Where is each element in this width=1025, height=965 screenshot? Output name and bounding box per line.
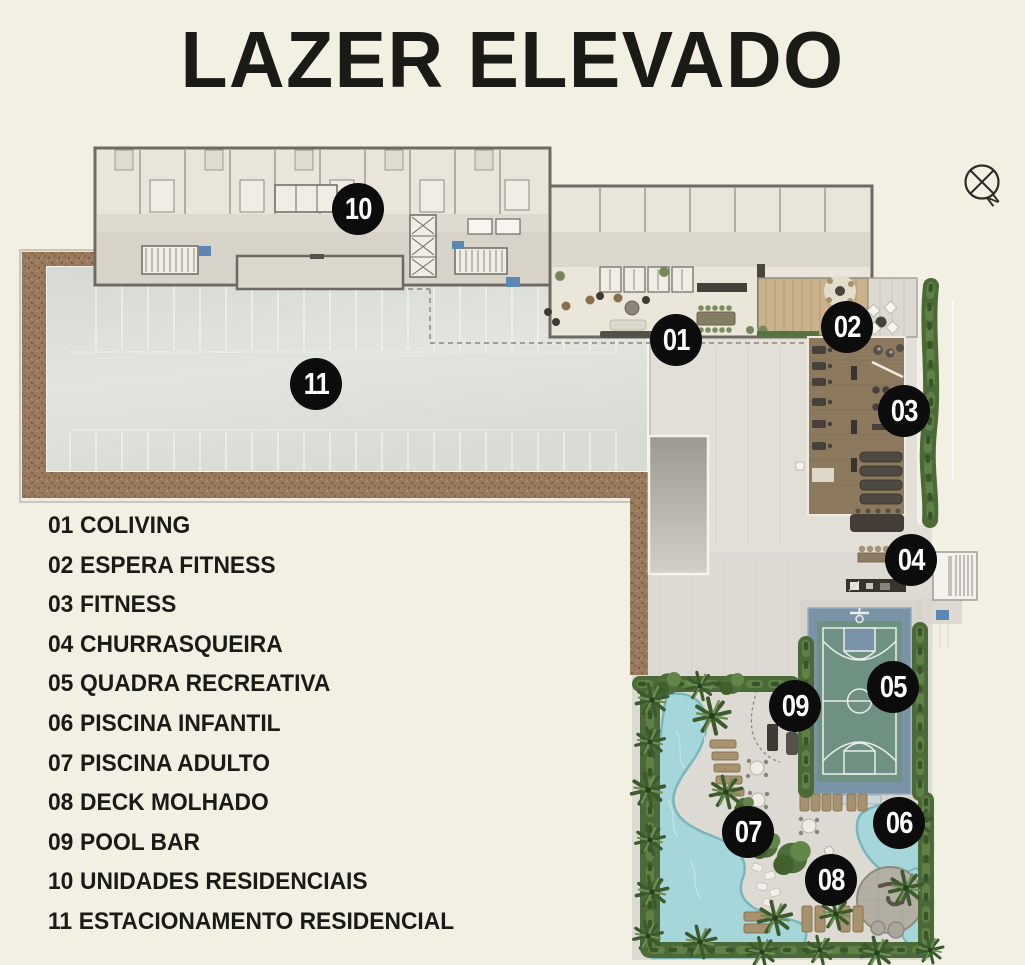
marker-07-piscina-adulto: 07	[722, 806, 774, 858]
legend-item-05: 05QUADRA RECREATIVA	[48, 664, 454, 704]
marker-06-piscina-infantil: 06	[873, 797, 925, 849]
legend-item-08: 08DECK MOLHADO	[48, 783, 454, 823]
legend-item-03: 03FITNESS	[48, 585, 454, 625]
marker-08-deck-molhado: 08	[805, 854, 857, 906]
legend-item-04: 04CHURRASQUEIRA	[48, 625, 454, 665]
marker-09-pool-bar: 09	[769, 680, 821, 732]
marker-03-fitness: 03	[878, 385, 930, 437]
vestibule	[867, 278, 917, 337]
marker-02-espera-fitness: 02	[821, 301, 873, 353]
marker-01-coliving: 01	[650, 314, 702, 366]
compass-icon	[952, 156, 1012, 216]
marker-04-churrasqueira: 04	[885, 534, 937, 586]
legend-item-10: 10UNIDADES RESIDENCIAIS	[48, 862, 454, 902]
legend-item-07: 07PISCINA ADULTO	[48, 744, 454, 784]
legend-item-09: 09POOL BAR	[48, 823, 454, 863]
marker-05-quadra: 05	[867, 661, 919, 713]
ramp	[649, 436, 708, 574]
accessibility-icon	[936, 610, 949, 620]
page: { "header": { "title": "LAZER ELEVADO" }…	[0, 0, 1025, 965]
legend-item-02: 02ESPERA FITNESS	[48, 546, 454, 586]
legend-item-11: 11ESTACIONAMENTO RESIDENCIAL	[48, 902, 454, 942]
legend: 01COLIVING 02ESPERA FITNESS 03FITNESS 04…	[48, 506, 476, 942]
marker-10-unidades: 10	[332, 183, 384, 235]
legend-item-06: 06PISCINA INFANTIL	[48, 704, 454, 744]
marker-11-estacionamento: 11	[290, 358, 342, 410]
compass: N	[952, 156, 1012, 216]
legend-item-01: 01COLIVING	[48, 506, 454, 546]
